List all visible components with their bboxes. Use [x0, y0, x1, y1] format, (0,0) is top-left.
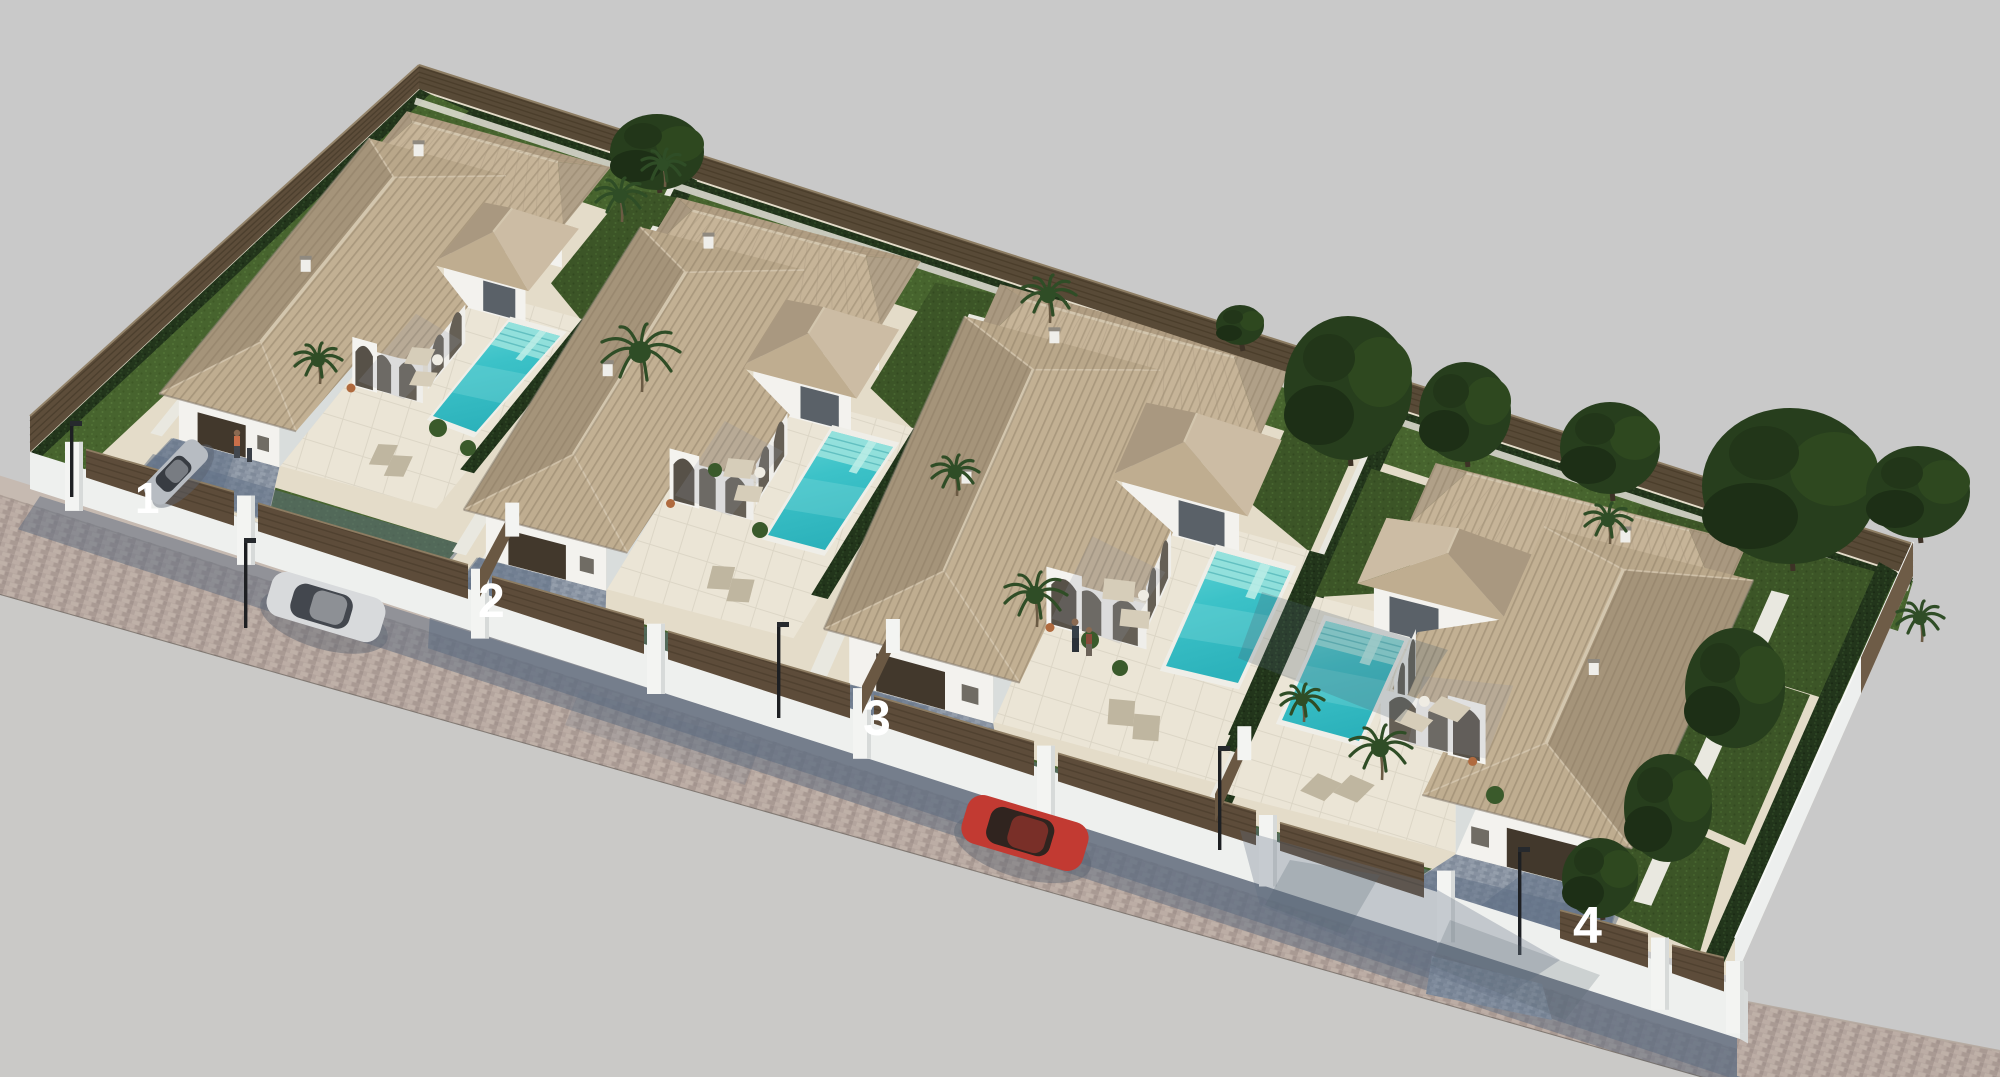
svg-text:1: 1 — [135, 474, 159, 523]
svg-text:2: 2 — [478, 575, 505, 628]
svg-text:4: 4 — [1573, 897, 1602, 955]
svg-text:3: 3 — [863, 690, 891, 746]
